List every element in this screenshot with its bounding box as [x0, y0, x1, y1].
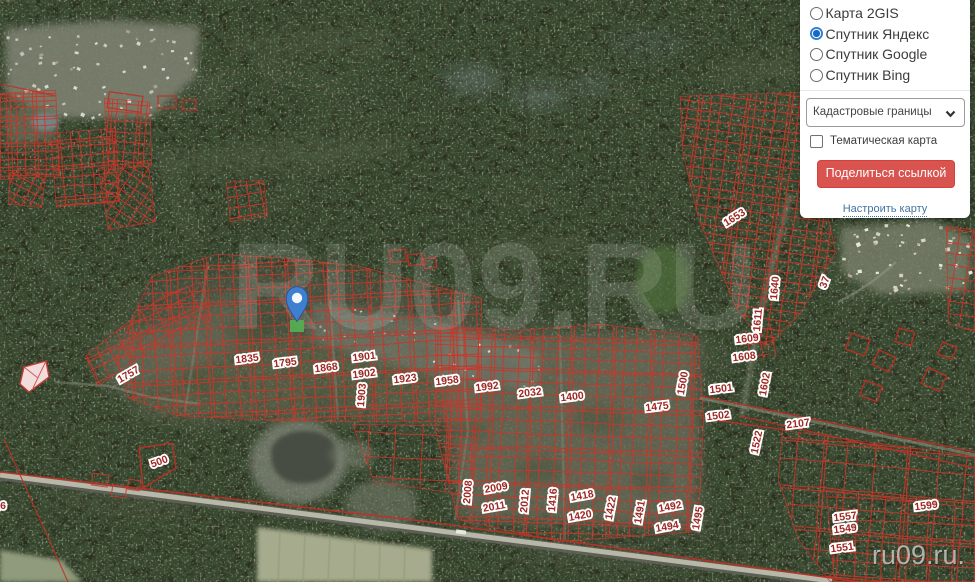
- svg-text:2012: 2012: [518, 489, 532, 513]
- svg-text:1640: 1640: [768, 276, 782, 300]
- svg-text:2008: 2008: [461, 480, 475, 504]
- svg-text:1416: 1416: [546, 488, 560, 512]
- svg-text:1903: 1903: [355, 383, 369, 407]
- svg-text:6: 6: [0, 500, 6, 512]
- svg-text:ru09.ru.: ru09.ru.: [872, 540, 965, 570]
- svg-text:1611: 1611: [751, 308, 765, 332]
- svg-text:RU09.RU: RU09.RU: [231, 219, 757, 356]
